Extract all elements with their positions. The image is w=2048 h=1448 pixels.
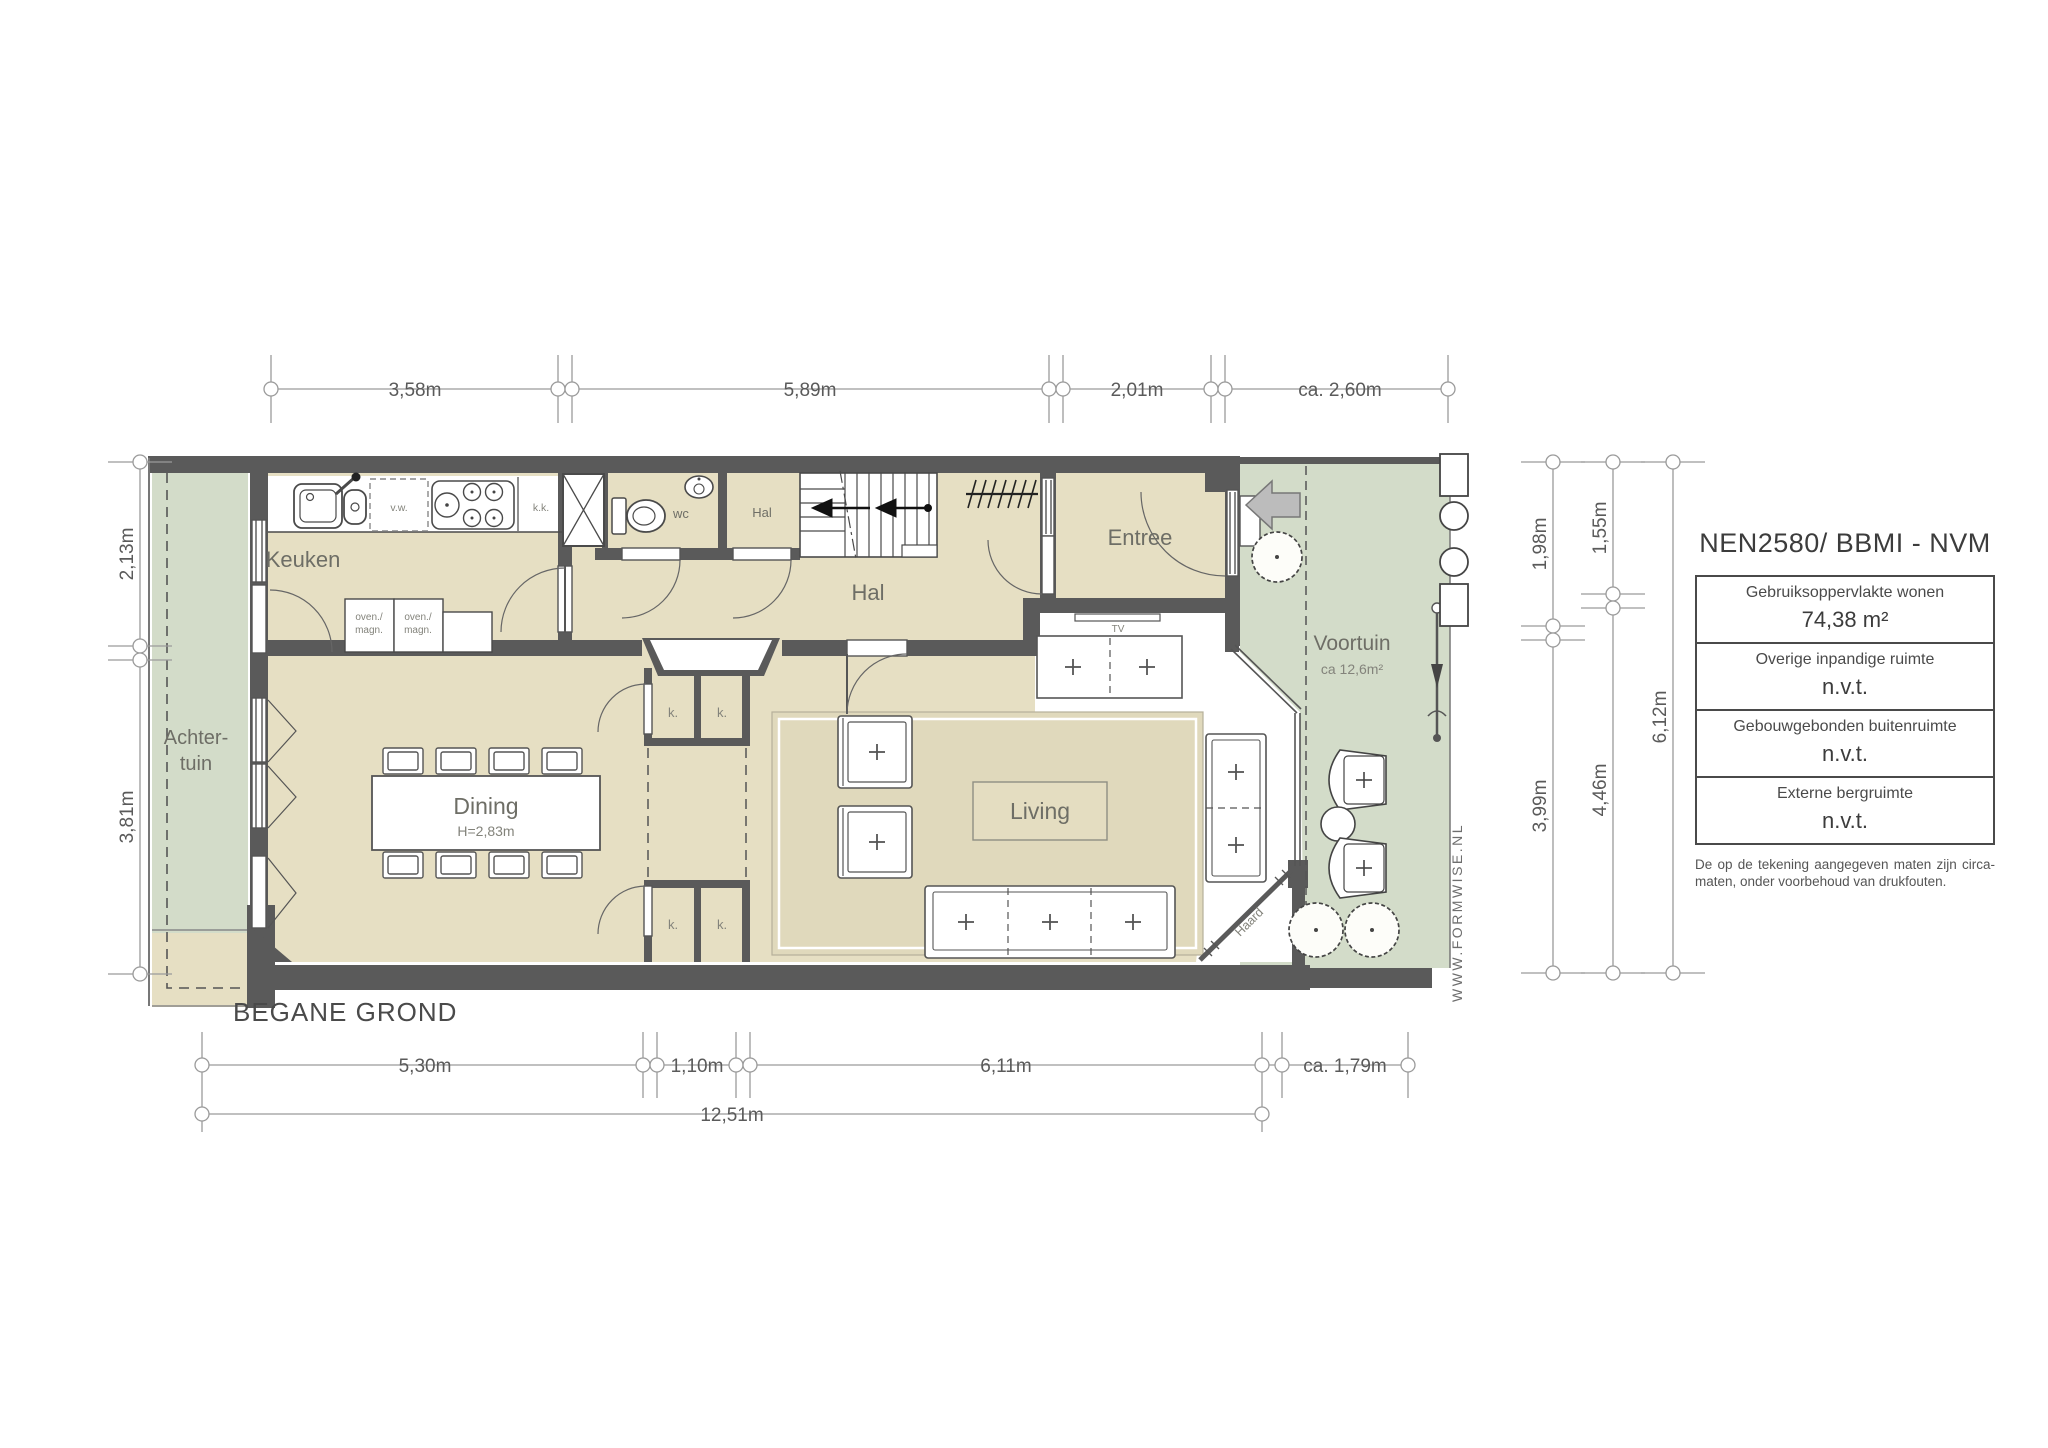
legend-row: Gebouwgebonden buitenruimte n.v.t. bbox=[1697, 711, 1993, 778]
dim-right-0: 1,98m bbox=[1530, 518, 1551, 571]
legend-table: Gebruiksoppervlakte wonen 74,38 m² Overi… bbox=[1695, 575, 1995, 845]
watermark: WWW.FORMWISE.NL bbox=[1449, 823, 1465, 1002]
voortuin-fence bbox=[1218, 457, 1450, 464]
dim-top-2: 2,01m bbox=[1111, 380, 1164, 401]
stairs-icon bbox=[800, 471, 937, 559]
room-label-achtertuin-2: tuin bbox=[180, 753, 212, 775]
dim-bottom-1: 1,10m bbox=[671, 1056, 724, 1077]
voortuin-area-label: ca 12,6m² bbox=[1321, 661, 1384, 677]
room-label-wc: wc bbox=[672, 506, 689, 521]
toilet-icon bbox=[612, 498, 626, 534]
label-oven2a: oven./ bbox=[404, 612, 431, 623]
front-door bbox=[1227, 490, 1238, 576]
dim-bottom-0: 5,30m bbox=[399, 1056, 452, 1077]
room-label-achtertuin-1: Achter- bbox=[164, 727, 228, 749]
legend-title: NEN2580/ BBMI - NVM bbox=[1695, 528, 1995, 559]
legend-row: Gebruiksoppervlakte wonen 74,38 m² bbox=[1697, 577, 1993, 644]
floorplan-page: 3,58m 5,89m 2,01m ca. 2,60m 5,30m 1,10m … bbox=[0, 0, 2048, 1448]
dim-left-0: 2,13m bbox=[117, 528, 138, 581]
legend-row: Overige inpandige ruimte n.v.t. bbox=[1697, 644, 1993, 711]
dim-top-0: 3,58m bbox=[389, 380, 442, 401]
garden-chair-icon bbox=[1329, 750, 1386, 810]
label-kk: k.k. bbox=[533, 502, 549, 514]
keuken-garden-door bbox=[252, 585, 266, 653]
room-label-keuken: Keuken bbox=[266, 547, 341, 572]
label-closet-4: k. bbox=[717, 917, 727, 932]
garden-table-icon bbox=[1321, 807, 1355, 841]
top-wall bbox=[148, 456, 1218, 473]
label-oven1a: oven./ bbox=[355, 612, 382, 623]
label-oven2b: magn. bbox=[404, 625, 432, 636]
dim-right-4: 6,12m bbox=[1650, 691, 1671, 744]
dim-bottom-2: 6,11m bbox=[980, 1056, 1031, 1077]
room-label-living: Living bbox=[1010, 798, 1070, 824]
label-closet-2: k. bbox=[717, 705, 727, 720]
dim-right-2: 1,55m bbox=[1590, 502, 1611, 555]
legend-row: Externe bergruimte n.v.t. bbox=[1697, 778, 1993, 843]
bottom-wall bbox=[250, 965, 1310, 990]
sofa-icon bbox=[925, 886, 1175, 958]
label-closet-3: k. bbox=[668, 917, 678, 932]
legend-row-value: n.v.t. bbox=[1703, 741, 1987, 767]
room-label-entree: Entree bbox=[1108, 525, 1173, 550]
label-vw: v.w. bbox=[390, 502, 407, 514]
entree-living-wall bbox=[1040, 598, 1228, 613]
room-label-dining: Dining bbox=[453, 793, 518, 819]
legend-row-label: Gebouwgebonden buitenruimte bbox=[1703, 718, 1987, 736]
label-closet-1: k. bbox=[668, 705, 678, 720]
armchair-icon bbox=[838, 716, 912, 788]
dim-left-1: 3,81m bbox=[117, 791, 138, 844]
label-tv: TV bbox=[1112, 624, 1125, 635]
legend-row-value: n.v.t. bbox=[1703, 674, 1987, 700]
dining-height-label: H=2,83m bbox=[457, 823, 514, 839]
armchair-icon bbox=[838, 806, 912, 878]
room-label-hal: Hal bbox=[851, 580, 884, 605]
plan-title: BEGANE GROND bbox=[233, 997, 457, 1027]
legend-row-label: Overige inpandige ruimte bbox=[1703, 651, 1987, 669]
legend-row-value: 74,38 m² bbox=[1703, 607, 1987, 633]
dining-garden-door bbox=[252, 856, 266, 928]
dim-top-1: 5,89m bbox=[784, 380, 837, 401]
hal-alcove bbox=[650, 640, 772, 670]
keuken-window bbox=[252, 520, 266, 582]
legend-row-label: Gebruiksoppervlakte wonen bbox=[1703, 584, 1987, 602]
legend-disclaimer: De op de tekening aangegeven maten zijn … bbox=[1695, 857, 1995, 891]
legend-row-label: Externe bergruimte bbox=[1703, 785, 1987, 803]
room-label-hal-klein: Hal bbox=[752, 505, 772, 520]
dining-window-1 bbox=[252, 698, 266, 762]
dim-right-1: 3,99m bbox=[1530, 780, 1551, 833]
dim-top-3: ca. 2,60m bbox=[1298, 380, 1381, 401]
legend-panel: NEN2580/ BBMI - NVM Gebruiksoppervlakte … bbox=[1695, 528, 1995, 891]
legend-row-value: n.v.t. bbox=[1703, 808, 1987, 834]
room-label-voortuin: Voortuin bbox=[1313, 632, 1390, 655]
garden-chair-icon bbox=[1329, 838, 1386, 898]
label-oven1b: magn. bbox=[355, 625, 383, 636]
loveseat-icon bbox=[1206, 734, 1266, 882]
tv-icon bbox=[1075, 614, 1160, 621]
dim-bottom-total: 12,51m bbox=[700, 1105, 763, 1126]
dining-window-2 bbox=[252, 764, 266, 828]
dim-bottom-3: ca. 1,79m bbox=[1303, 1056, 1386, 1077]
dim-right-3: 4,46m bbox=[1590, 764, 1611, 817]
